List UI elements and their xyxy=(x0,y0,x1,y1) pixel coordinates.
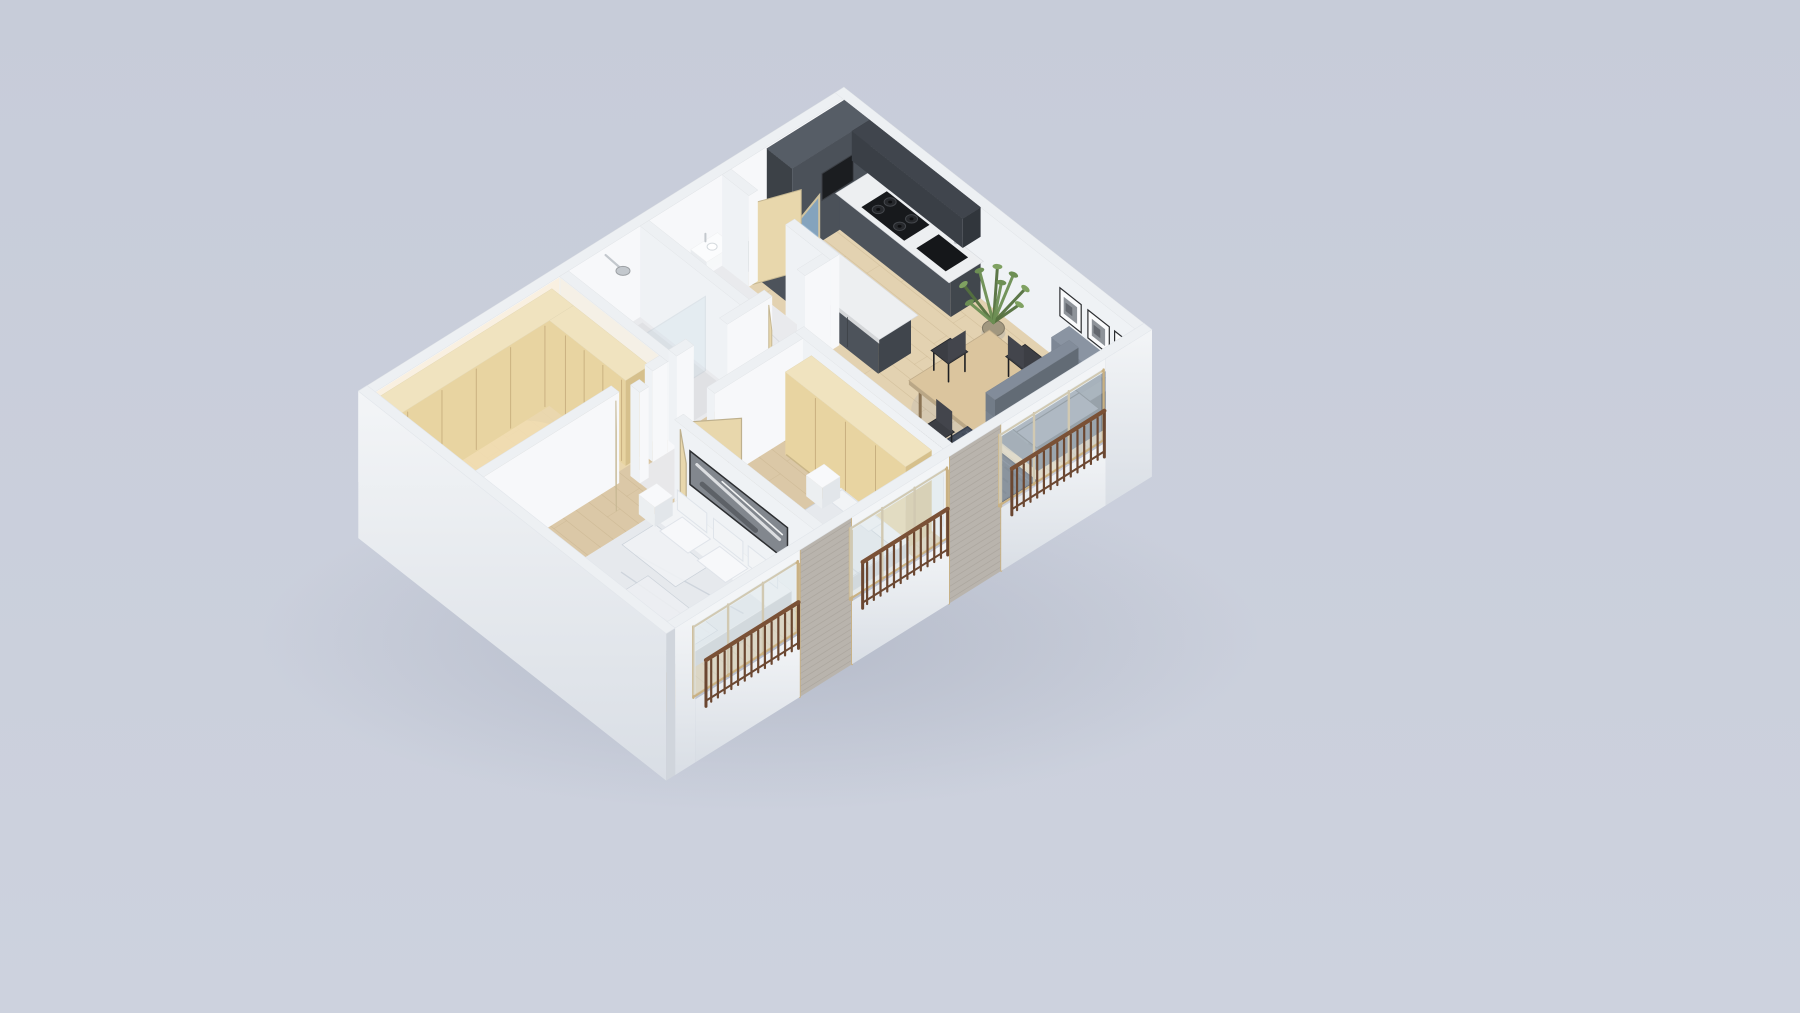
apartment-3d-floorplan xyxy=(0,0,1800,1013)
floorplan-render-canvas xyxy=(0,0,1800,1013)
